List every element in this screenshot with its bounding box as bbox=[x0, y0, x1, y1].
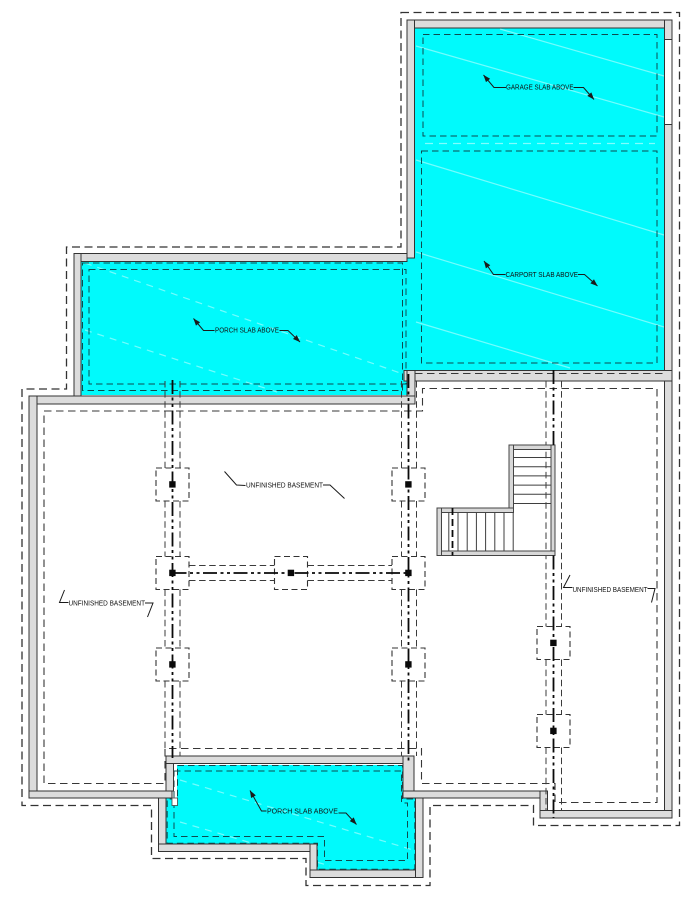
svg-text:UNFINISHED BASEMENT: UNFINISHED BASEMENT bbox=[69, 601, 146, 608]
svg-text:UNFINISHED BASEMENT: UNFINISHED BASEMENT bbox=[246, 483, 324, 490]
svg-text:PORCH SLAB ABOVE: PORCH SLAB ABOVE bbox=[267, 809, 338, 816]
svg-text:UNFINISHED BASEMENT: UNFINISHED BASEMENT bbox=[573, 587, 649, 594]
svg-text:PORCH SLAB ABOVE: PORCH SLAB ABOVE bbox=[215, 328, 279, 335]
svg-text:CARPORT SLAB ABOVE: CARPORT SLAB ABOVE bbox=[506, 272, 579, 279]
svg-text:GARAGE SLAB ABOVE: GARAGE SLAB ABOVE bbox=[506, 85, 574, 92]
